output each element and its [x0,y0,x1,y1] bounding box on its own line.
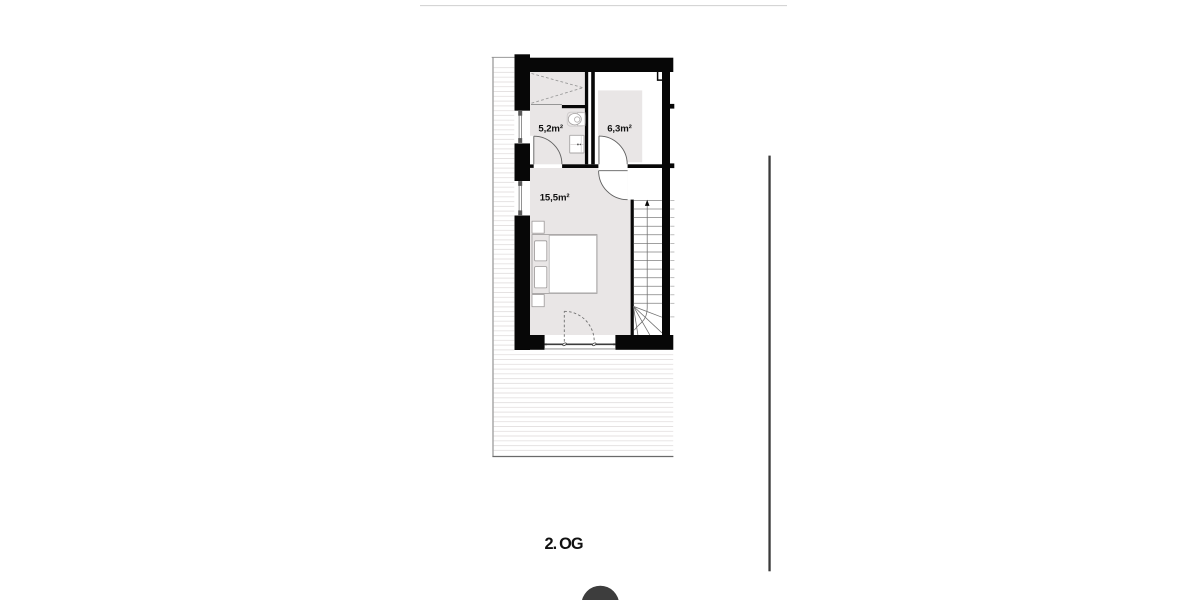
svg-text:2. OG: 2. OG [545,535,583,553]
svg-text:6,3m²: 6,3m² [607,123,632,134]
svg-text:5,2m²: 5,2m² [538,123,563,134]
svg-text:15,5m²: 15,5m² [540,193,570,204]
